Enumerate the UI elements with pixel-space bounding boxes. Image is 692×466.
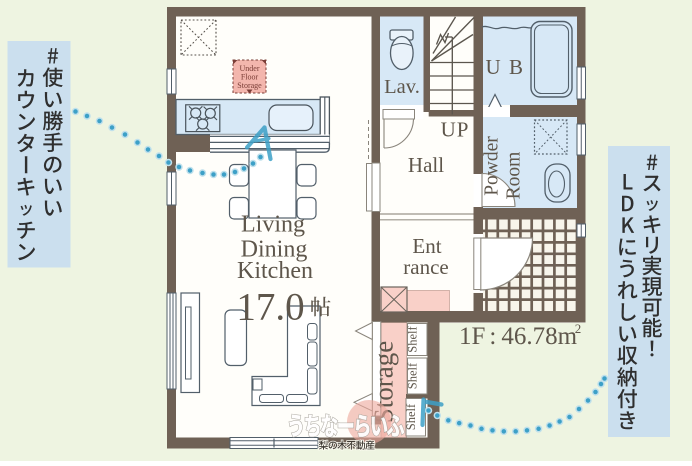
svg-text:Kitchen: Kitchen (237, 258, 313, 284)
svg-text:UP: UP (441, 118, 470, 142)
svg-text:Room: Room (504, 152, 525, 200)
svg-text:U B: U B (486, 55, 525, 79)
svg-text:Shelf: Shelf (406, 362, 420, 389)
svg-text:Shelf: Shelf (406, 325, 420, 352)
svg-text:Lav.: Lav. (384, 76, 420, 98)
svg-text:Living: Living (241, 212, 305, 238)
svg-text:Hall: Hall (408, 153, 444, 177)
svg-text:1F:46.78m: 1F:46.78m (459, 323, 578, 350)
svg-text:Storage: Storage (237, 81, 262, 90)
svg-text:rance: rance (403, 255, 448, 279)
svg-text:17.0: 17.0 (236, 286, 304, 329)
svg-text:Shelf: Shelf (404, 403, 418, 430)
svg-text:2: 2 (575, 321, 582, 336)
svg-text:Powder: Powder (482, 136, 503, 196)
